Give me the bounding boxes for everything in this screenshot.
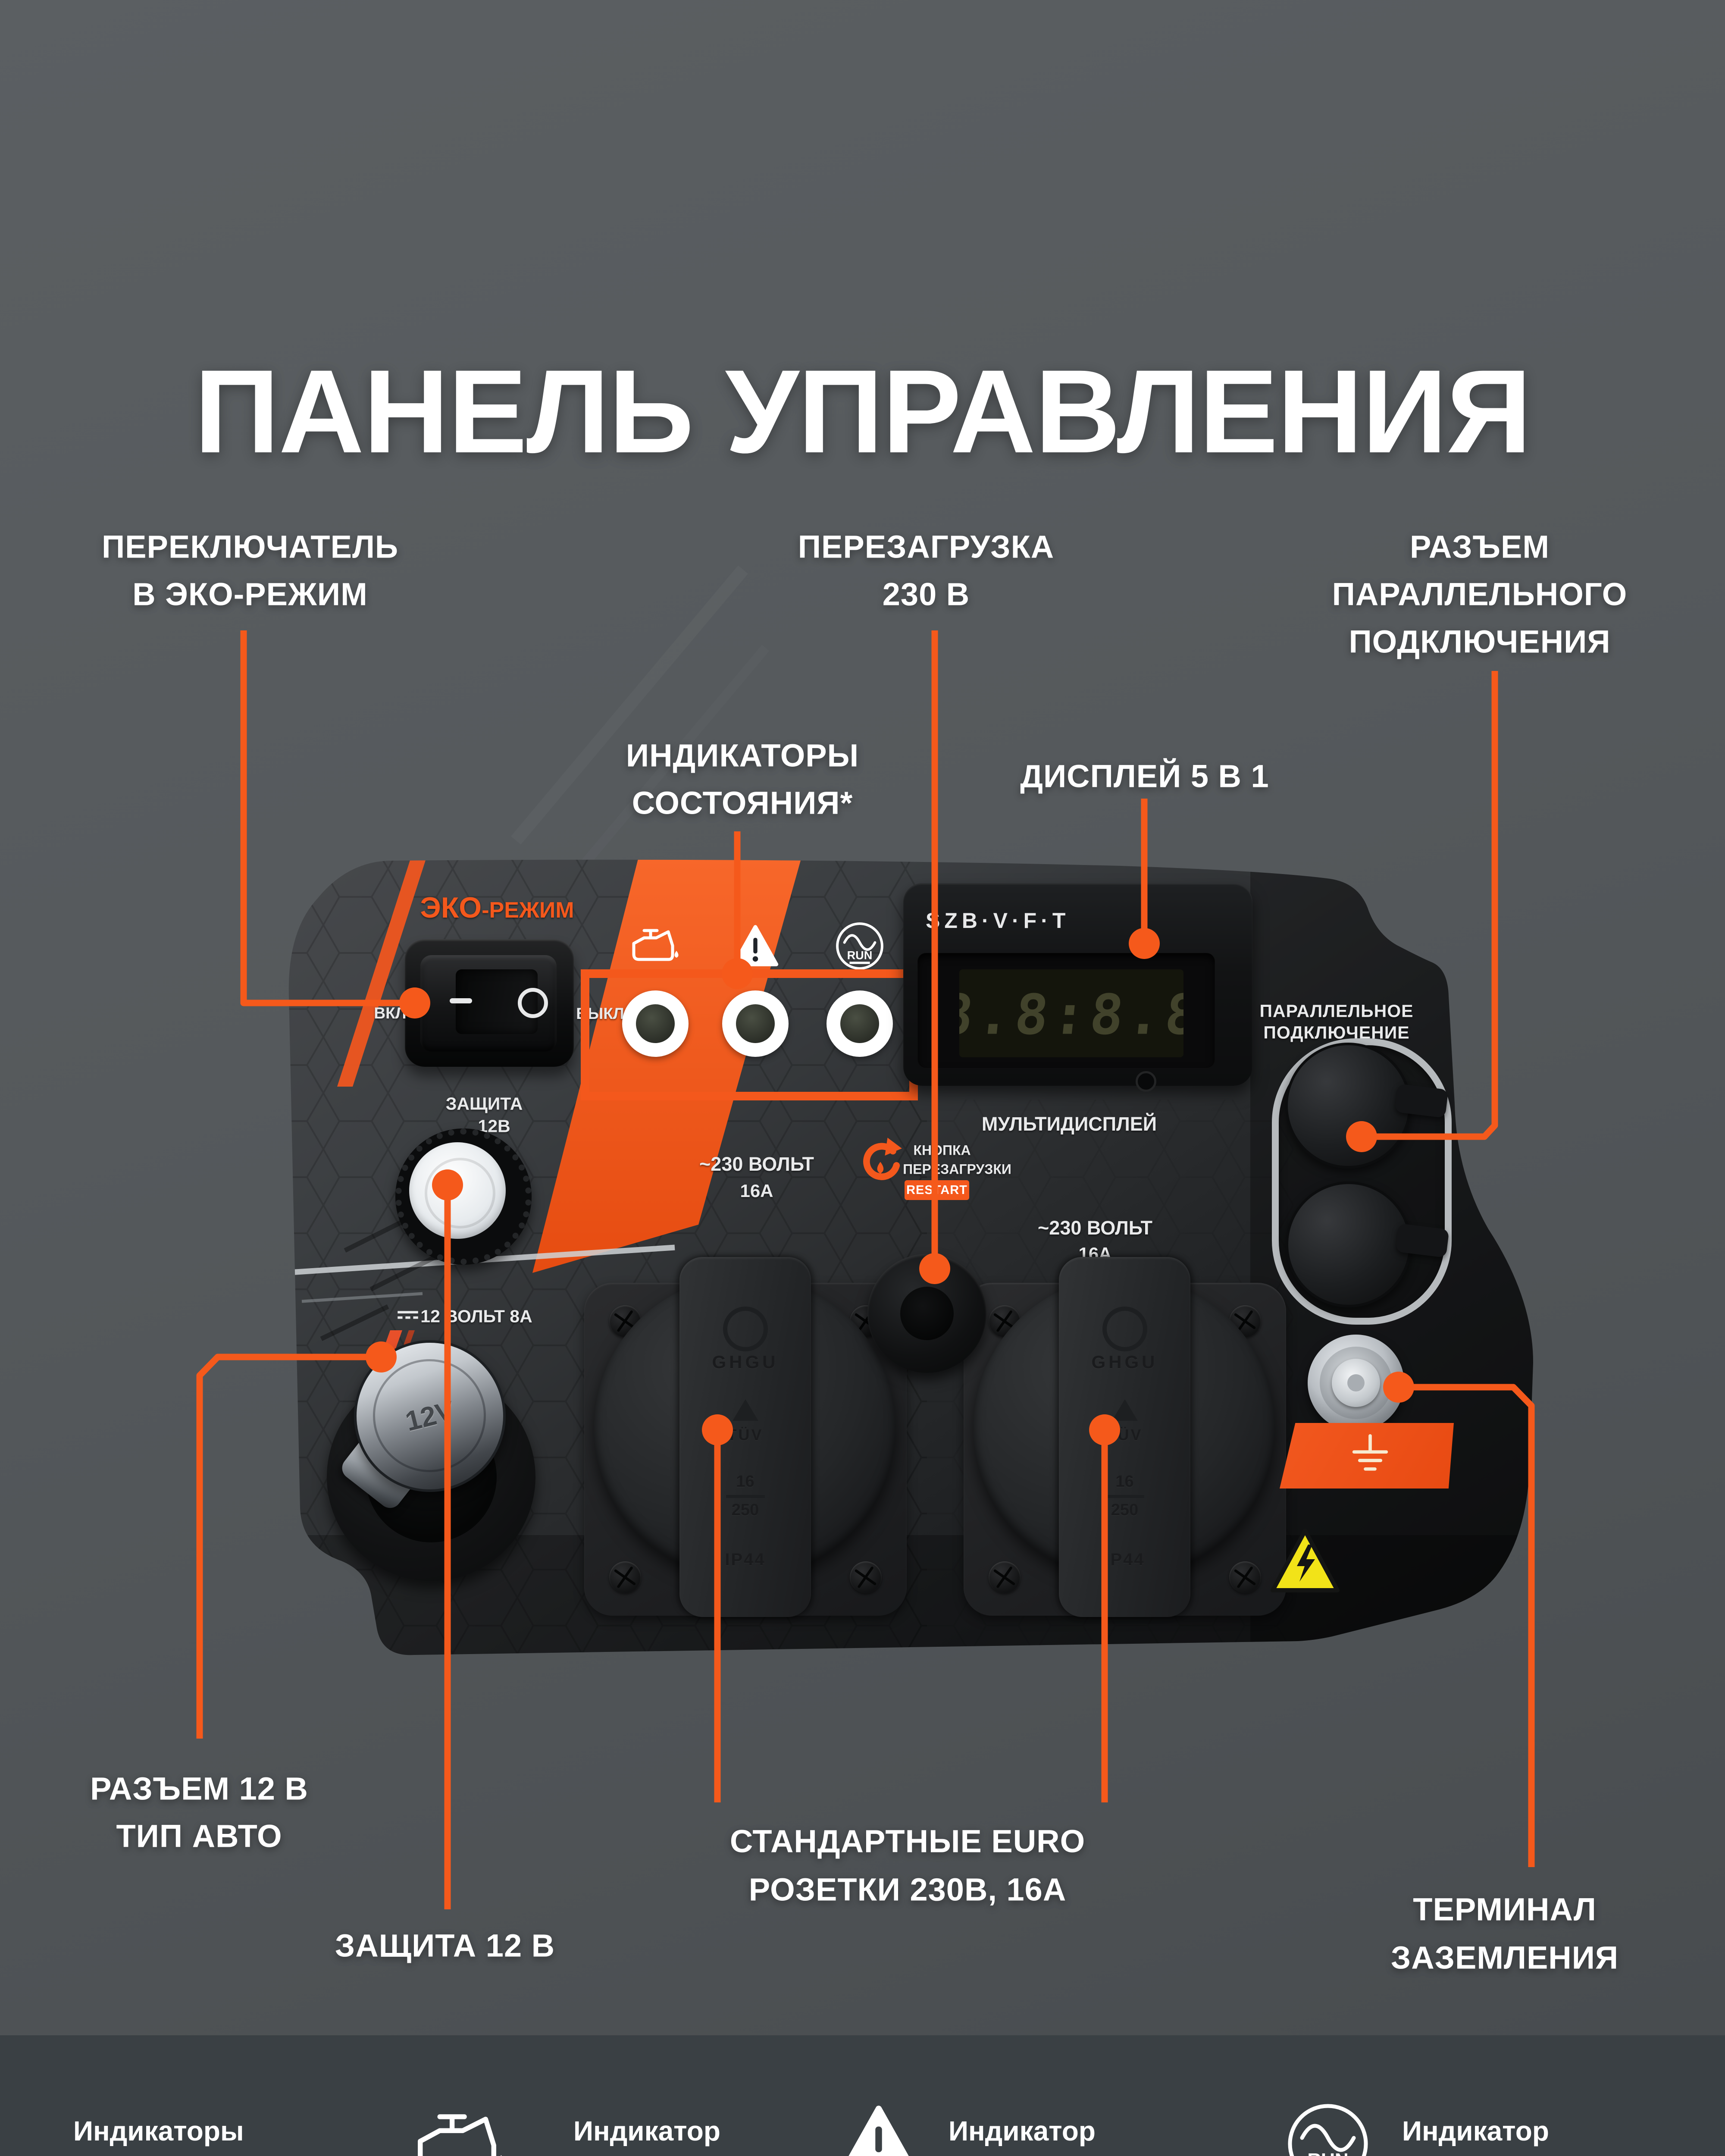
callout-line-12v-socket xyxy=(200,1357,379,1739)
legend-voltage-line2: напряжения xyxy=(1402,2150,1568,2156)
callout-line-ground xyxy=(1400,1387,1531,1867)
callout-dot-eco xyxy=(399,987,430,1018)
infographic-canvas: ПАНЕЛЬ УПРАВЛЕНИЯ ПЕРЕКЛЮЧАТЕЛЬ В ЭКО-РЕ… xyxy=(0,0,1725,2156)
legend-oil-line1: Индикатор xyxy=(573,2115,720,2147)
legend-title-line1: Индикаторы xyxy=(73,2115,244,2147)
callout-dot-euro-right xyxy=(1089,1414,1120,1445)
legend-title-line2: состояния: * xyxy=(73,2150,244,2156)
callout-dot-restart xyxy=(919,1253,950,1284)
oil-icon xyxy=(401,2109,513,2156)
callout-line-parallel xyxy=(1367,671,1495,1137)
callout-line-eco xyxy=(244,630,410,1003)
callout-dot-ground xyxy=(1383,1372,1414,1403)
callout-dot-protection xyxy=(432,1169,463,1200)
callout-dot-display xyxy=(1129,928,1160,959)
legend-overload-line1: Индикатор xyxy=(949,2115,1096,2147)
legend-overload-line2: перезагрузки xyxy=(949,2150,1129,2156)
legend-voltage-line1: Индикатор xyxy=(1402,2115,1549,2147)
callout-dot-parallel xyxy=(1346,1121,1377,1152)
overload-icon xyxy=(840,2103,917,2156)
voltage-icon: RUN xyxy=(1285,2101,1371,2156)
callout-lines xyxy=(0,0,1725,2156)
callout-dot-indicators xyxy=(722,958,753,989)
legend-oil-line2: масла xyxy=(573,2150,657,2156)
callout-dot-euro-left xyxy=(702,1414,733,1445)
svg-text:RUN: RUN xyxy=(1307,2150,1348,2156)
legend-bar: Индикаторы состояния: * Индикатор масла … xyxy=(0,2035,1725,2156)
callout-dot-12v-socket xyxy=(366,1341,397,1373)
